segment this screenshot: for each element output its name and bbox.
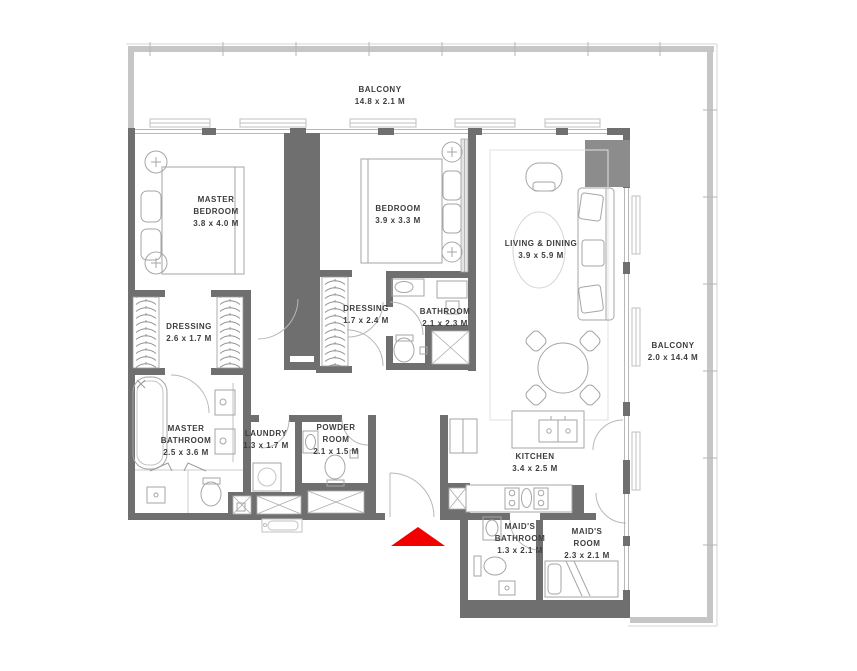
room-name: BALCONY xyxy=(628,340,718,352)
room-dims: 2.6 x 1.7 M xyxy=(149,333,229,345)
room-name: MASTER BATHROOM xyxy=(149,423,223,447)
floor-plan-page: BALCONY 14.8 x 2.1 M MASTER BEDROOM 3.8 … xyxy=(0,0,857,671)
dining-table xyxy=(524,329,602,407)
room-dims: 2.3 x 2.1 M xyxy=(560,550,614,562)
room-dims: 3.8 x 4.0 M xyxy=(180,218,252,230)
room-dims: 2.1 x 1.5 M xyxy=(310,446,362,458)
room-label-powder-room: POWDER ROOM 2.1 x 1.5 M xyxy=(310,422,362,458)
room-label-master-bathroom: MASTER BATHROOM 2.5 x 3.6 M xyxy=(149,423,223,459)
room-label-dressing-1: DRESSING 2.6 x 1.7 M xyxy=(149,321,229,345)
room-label-maids-room: MAID'S ROOM 2.3 x 2.1 M xyxy=(560,526,614,562)
room-name: POWDER ROOM xyxy=(310,422,362,446)
room-dims: 1.3 x 2.1 M xyxy=(488,545,552,557)
room-dims: 3.9 x 3.3 M xyxy=(353,215,443,227)
room-label-bedroom: BEDROOM 3.9 x 3.3 M xyxy=(353,203,443,227)
room-label-living-dining: LIVING & DINING 3.9 x 5.9 M xyxy=(491,238,591,262)
room-name: LIVING & DINING xyxy=(491,238,591,250)
room-label-bathroom: BATHROOM 2.1 x 2.3 M xyxy=(405,306,485,330)
room-label-balcony-right: BALCONY 2.0 x 14.4 M xyxy=(628,340,718,364)
room-dims: 3.4 x 2.5 M xyxy=(495,463,575,475)
room-name: LAUNDRY xyxy=(229,428,303,440)
room-dims: 1.3 x 1.7 M xyxy=(229,440,303,452)
room-dims: 3.9 x 5.9 M xyxy=(491,250,591,262)
room-name: KITCHEN xyxy=(495,451,575,463)
room-name: DRESSING xyxy=(326,303,406,315)
room-name: BEDROOM xyxy=(353,203,443,215)
entrance-arrow-icon xyxy=(391,527,445,546)
room-name: BALCONY xyxy=(335,84,425,96)
room-dims: 2.1 x 2.3 M xyxy=(405,318,485,330)
maids-room-bed xyxy=(545,561,618,597)
room-label-balcony-top: BALCONY 14.8 x 2.1 M xyxy=(335,84,425,108)
room-dims: 14.8 x 2.1 M xyxy=(335,96,425,108)
room-label-laundry: LAUNDRY 1.3 x 1.7 M xyxy=(229,428,303,452)
room-name: DRESSING xyxy=(149,321,229,333)
room-label-dressing-2: DRESSING 1.7 x 2.4 M xyxy=(326,303,406,327)
floor-plan-drawing xyxy=(0,0,857,671)
room-name: BATHROOM xyxy=(405,306,485,318)
room-label-kitchen: KITCHEN 3.4 x 2.5 M xyxy=(495,451,575,475)
room-dims: 2.0 x 14.4 M xyxy=(628,352,718,364)
room-dims: 1.7 x 2.4 M xyxy=(326,315,406,327)
room-label-master-bedroom: MASTER BEDROOM 3.8 x 4.0 M xyxy=(180,194,252,230)
room-name: MAID'S BATHROOM xyxy=(488,521,552,545)
room-name: MASTER BEDROOM xyxy=(180,194,252,218)
living-furniture xyxy=(490,150,614,420)
room-name: MAID'S ROOM xyxy=(560,526,614,550)
room-dims: 2.5 x 3.6 M xyxy=(149,447,223,459)
room-label-maids-bathroom: MAID'S BATHROOM 1.3 x 2.1 M xyxy=(488,521,552,557)
